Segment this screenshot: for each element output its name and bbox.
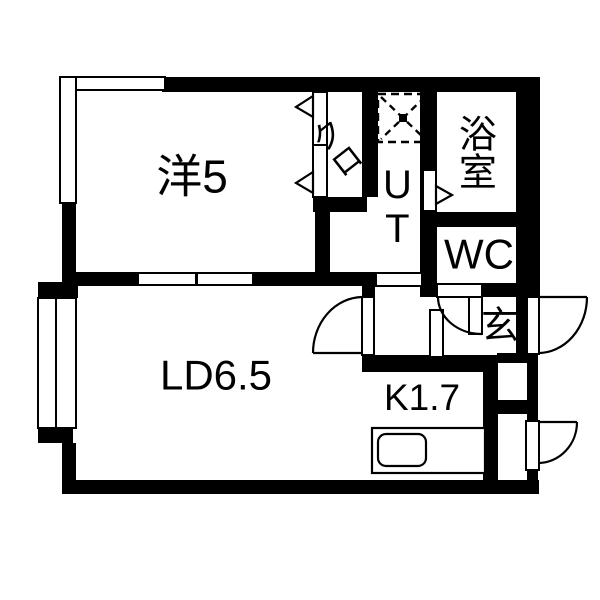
room-label-bath: 浴室 <box>454 114 493 190</box>
room-label-wc: WC <box>444 234 514 277</box>
window <box>38 298 56 428</box>
wall <box>498 400 527 414</box>
windows <box>38 77 165 428</box>
room-label-kitchen: K1.7 <box>384 379 460 417</box>
wall <box>313 197 367 212</box>
wall <box>62 480 539 494</box>
kitchen-counter <box>372 428 485 473</box>
wall <box>62 203 76 282</box>
wall <box>435 212 540 227</box>
sliding-door-arrow-icon <box>296 96 313 117</box>
wall <box>482 283 517 297</box>
door-swing-arc <box>538 297 587 353</box>
room-sliding-door <box>138 273 196 285</box>
floorplan-svg <box>0 0 600 600</box>
room-label-western: 洋5 <box>156 154 228 201</box>
window <box>60 77 76 203</box>
room-label-utility: UT <box>377 163 418 251</box>
wall <box>497 353 528 363</box>
wall <box>76 272 138 286</box>
wall <box>315 212 330 286</box>
genkan-step <box>430 310 443 357</box>
wall <box>516 77 540 297</box>
entrance-door-opening <box>527 297 539 354</box>
room-label-living: LD6.5 <box>160 355 272 398</box>
wc-door-opening <box>437 284 482 297</box>
wall <box>527 353 538 422</box>
wall <box>38 428 73 443</box>
floorplan: 洋5 LD6.5 K1.7 クロ UT 浴室 WC 玄 <box>0 0 600 600</box>
kitchen-sink <box>378 434 426 466</box>
utility-opening <box>376 273 422 286</box>
bath-door <box>423 170 436 211</box>
window <box>56 298 76 428</box>
room-sliding-door <box>197 273 253 285</box>
door-swing-arc <box>538 422 577 463</box>
ld-door-leaf <box>362 297 374 355</box>
sliding-door-arrow-icon <box>436 186 452 204</box>
door-swing-arc <box>313 297 362 353</box>
sliding-door-arrow-icon <box>296 172 313 193</box>
wall <box>162 77 540 92</box>
storage-door-opening <box>526 421 539 470</box>
wall <box>38 282 78 298</box>
room-label-entrance: 玄 <box>481 308 519 347</box>
